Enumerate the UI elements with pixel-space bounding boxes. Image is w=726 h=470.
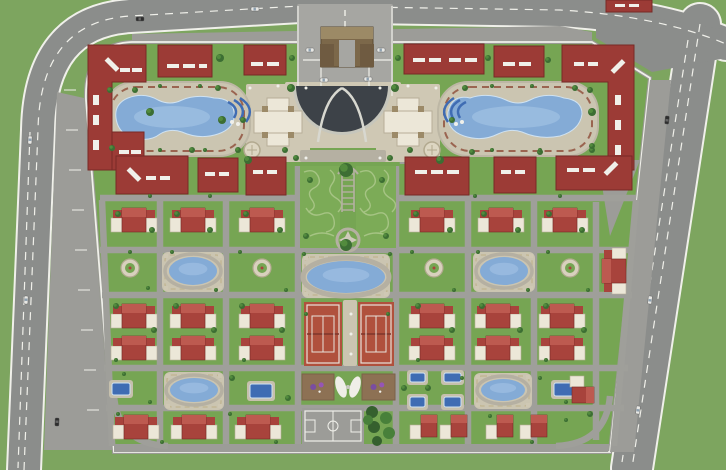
tree-grove: [380, 412, 392, 424]
car: [306, 48, 314, 52]
apartment-b2: [198, 158, 238, 192]
tree-grove: [372, 436, 382, 446]
paved-strip-bottom: [114, 444, 610, 452]
car: [24, 296, 28, 304]
playground: [362, 374, 395, 400]
masterplan-render: [0, 0, 726, 470]
tree-grove: [363, 415, 373, 425]
villa-pair: [409, 336, 455, 360]
car: [377, 48, 385, 52]
gate-pylon: [360, 44, 374, 67]
small-pool: [250, 384, 272, 398]
villa-pair: [171, 415, 217, 439]
car: [320, 78, 328, 82]
small-pool: [410, 397, 425, 407]
small-pool: [444, 397, 461, 407]
apartment-b5: [494, 157, 536, 193]
villa-pair: [113, 415, 159, 439]
site-plan-svg: [0, 0, 726, 470]
apartment-a3: [244, 45, 286, 75]
villa-pair: [235, 415, 281, 439]
car: [636, 406, 641, 414]
car: [648, 296, 653, 304]
villa-pair: [539, 336, 585, 360]
villa-pair: [239, 304, 285, 328]
apartment-b6: [556, 156, 632, 190]
villa-pair: [239, 336, 285, 360]
car: [251, 7, 259, 11]
villa-pair: [170, 336, 216, 360]
car: [55, 418, 59, 426]
axis-walk: [300, 150, 386, 162]
villa-pair: [475, 336, 521, 360]
playground: [302, 374, 334, 400]
apartment-a2: [158, 45, 212, 77]
tree-grove: [383, 427, 395, 439]
apartment-b1: [116, 156, 188, 194]
car: [28, 136, 32, 144]
apartment-b4: [405, 157, 469, 195]
small-pool: [410, 373, 425, 382]
entrance-gate: [320, 27, 374, 67]
small-pool: [444, 373, 461, 382]
car: [364, 77, 372, 81]
gate-pylon: [320, 44, 334, 67]
apartment-b3: [246, 157, 286, 195]
apartment-a5: [494, 46, 544, 77]
car: [136, 17, 144, 21]
villa-pair: [111, 336, 157, 360]
car: [665, 116, 670, 124]
small-pool: [112, 383, 130, 395]
villa-pair: [602, 248, 626, 294]
